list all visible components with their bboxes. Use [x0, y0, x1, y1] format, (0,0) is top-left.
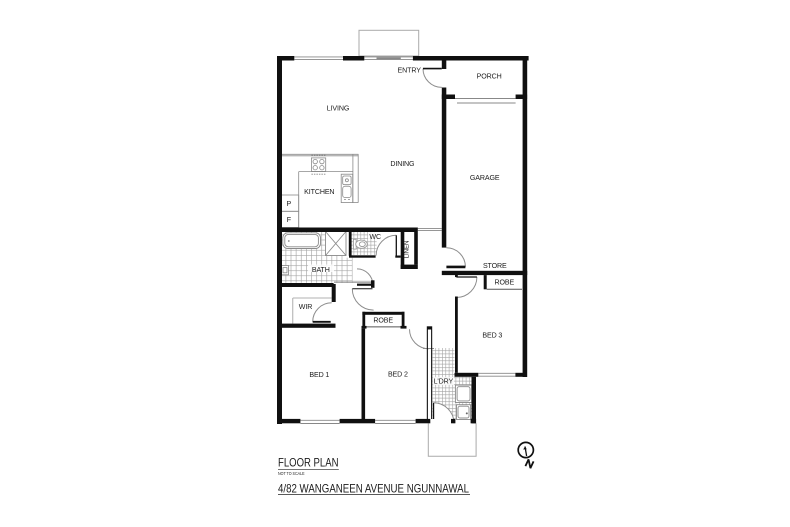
svg-text:4/82 WANGANEEN AVENUE NGUNNAWA: 4/82 WANGANEEN AVENUE NGUNNAWAL	[278, 482, 469, 495]
svg-text:STORE: STORE	[483, 262, 507, 270]
svg-text:LINEN: LINEN	[403, 241, 410, 259]
svg-text:DINING: DINING	[390, 160, 414, 168]
svg-text:BED 1: BED 1	[309, 371, 329, 379]
svg-text:BATH: BATH	[312, 266, 330, 274]
svg-text:ROBE: ROBE	[373, 317, 393, 325]
svg-text:NOT TO SCALE: NOT TO SCALE	[278, 471, 305, 476]
svg-text:BED 2: BED 2	[388, 370, 408, 378]
svg-text:P: P	[286, 200, 291, 208]
svg-text:GARAGE: GARAGE	[470, 174, 500, 182]
svg-text:PORCH: PORCH	[477, 73, 502, 81]
svg-text:WIR: WIR	[299, 303, 312, 311]
svg-text:L'DRY: L'DRY	[434, 378, 454, 386]
svg-text:LIVING: LIVING	[327, 105, 350, 113]
svg-text:ENTRY: ENTRY	[398, 67, 422, 75]
svg-text:BED 3: BED 3	[482, 331, 502, 339]
svg-text:ROBE: ROBE	[494, 278, 514, 286]
svg-text:FLOOR PLAN: FLOOR PLAN	[278, 456, 339, 470]
svg-text:KITCHEN: KITCHEN	[304, 188, 334, 196]
svg-text:WC: WC	[369, 233, 381, 241]
